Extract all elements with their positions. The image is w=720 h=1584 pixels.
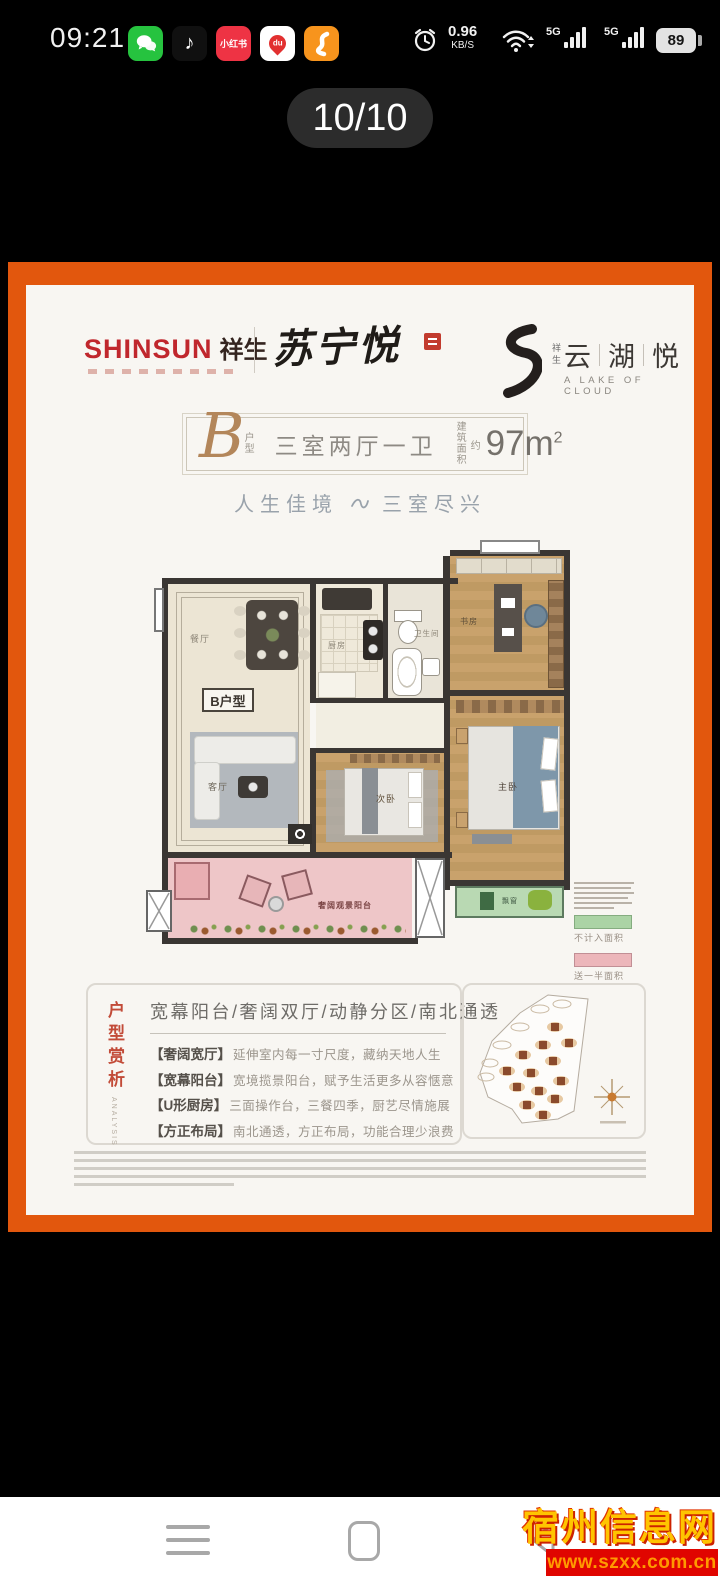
brand-shinsun-cn: 祥生 [220, 330, 268, 365]
chat-bubbles-glyph [135, 33, 157, 55]
squiggle-icon [350, 496, 370, 510]
brand-right-name: 云 湖 悦 [564, 335, 679, 374]
wall [383, 578, 388, 703]
unit-layout: 三室两厅一卫 [275, 427, 437, 461]
balcony-plants [186, 922, 406, 936]
bath-sink [422, 658, 440, 676]
bay-window-left [154, 588, 164, 632]
brand-shinsun-en: SHINSUN [84, 334, 213, 365]
label-dining: 餐厅 [190, 632, 210, 645]
bedroom2-wardrobe [350, 754, 440, 763]
label-bedroom2: 次卧 [376, 792, 396, 805]
floor-plan: 餐厅 B户型 客厅 厨房 [150, 540, 570, 964]
area-label: 建筑面积 [457, 422, 467, 466]
balcony-planter-box [174, 862, 210, 900]
dining-chair [234, 650, 246, 660]
unit-label-box: B户型 [202, 688, 254, 712]
alarm-icon [412, 27, 438, 58]
calligraphy-logo: 苏宁悦 [271, 313, 402, 375]
dining-table [246, 600, 298, 670]
android-nav-bar: 宿州信息网 www.szxx.com.cn [0, 1497, 720, 1584]
coffee-table [238, 776, 268, 798]
wall [310, 748, 450, 753]
legend-pink-swatch [574, 953, 632, 967]
master-wardrobe [456, 700, 564, 713]
watermark-site-name: 宿州信息网 [522, 1497, 717, 1551]
watermark-url-banner: www.szxx.com.cn [546, 1549, 718, 1576]
ac-ledge [480, 540, 540, 554]
analysis-bullet: 【宽幕阳台】宽境揽景阳台，赋予生活更多从容惬意 [150, 1069, 446, 1089]
unit-title-box: B 户型 三室两厅一卫 建筑面积 约 97m2 [186, 417, 524, 471]
s-curve-glyph [311, 31, 333, 57]
kitchen-sink [322, 588, 372, 610]
wall [443, 690, 570, 696]
sofa [194, 736, 296, 764]
flyer-image[interactable]: SHINSUN 祥生 苏宁悦 祥生 云 湖 悦 A LAKE OF CLOUD … [8, 262, 712, 1232]
signal-5g-icon-2: 5G [604, 26, 644, 48]
music-note-glyph: ♪ [185, 32, 195, 55]
label-living: 客厅 [208, 780, 228, 793]
analysis-divider [150, 1033, 446, 1034]
image-pager-indicator: 10/10 [287, 88, 433, 148]
nightstand [456, 812, 468, 828]
map-pin-glyph: du [265, 31, 289, 55]
xiaohongshu-label: 小红书 [220, 37, 247, 50]
brand-divider [254, 327, 255, 373]
network-speed: 0.96 KB/S [448, 25, 477, 53]
orange-app-icon [304, 26, 339, 61]
signal-5g-icon-1: 5G [546, 26, 586, 48]
bedroom2-pillow [408, 802, 422, 828]
legend-pink-label: 送一半面积 [574, 969, 640, 982]
brand-right-vertical: 祥生 [550, 343, 563, 367]
flyer-card: SHINSUN 祥生 苏宁悦 祥生 云 湖 悦 A LAKE OF CLOUD … [26, 285, 694, 1215]
brand-right-subtitle: A LAKE OF CLOUD [564, 375, 694, 397]
bedroom2-pillow [408, 772, 422, 798]
wall [162, 852, 452, 858]
analysis-bullets: 【奢阔宽厅】延伸室内每一寸尺度，藏纳天地人生 【宽幕阳台】宽境揽景阳台，赋予生活… [150, 1043, 446, 1140]
wall [450, 880, 570, 886]
wall [564, 550, 570, 890]
master-bench [472, 834, 512, 844]
legend-green-swatch [574, 915, 632, 929]
dining-chair [234, 606, 246, 616]
brand-tagline-dots [88, 369, 236, 374]
unit-letter: B [199, 416, 245, 456]
label-kitchen: 厨房 [328, 640, 346, 651]
site-plan-map [464, 985, 640, 1133]
kitchen-cabinet [318, 672, 356, 698]
legend-green-label: 不计入面积 [574, 931, 640, 944]
analysis-headline: 宽幕阳台/奢阔双厅/动静分区/南北通透 [150, 998, 446, 1024]
battery-nub [698, 35, 702, 46]
label-bay-window: 飘窗 [502, 896, 518, 906]
green-plant [528, 890, 552, 910]
analysis-card: 户型赏析 ANALYSIS 宽幕阳台/奢阔双厅/动静分区/南北通透 【奢阔宽厅】… [86, 983, 462, 1145]
tv-cabinet [288, 824, 312, 844]
wechat-icon [128, 26, 163, 61]
bathtub [392, 648, 422, 696]
phone-screen: 09:21 ♪ 小红书 du 0.96 KB/S [0, 0, 720, 1584]
tagline: 人生佳境 三室尽兴 [26, 488, 694, 517]
balcony-table [268, 896, 284, 912]
xiaohongshu-icon: 小红书 [216, 26, 251, 61]
wall [310, 578, 316, 703]
dining-chair [298, 606, 310, 616]
recents-button[interactable] [166, 1525, 210, 1564]
wall [310, 698, 450, 703]
entry-hall [316, 703, 444, 748]
study-closet [456, 558, 562, 574]
study-wardrobe [548, 580, 564, 688]
wall [443, 556, 450, 703]
battery-indicator: 89 [656, 28, 696, 53]
compass-icon [594, 1079, 630, 1115]
study-chair [524, 604, 548, 628]
analysis-vertical-title: 户型赏析 [102, 1001, 127, 1093]
area-approx: 约 [471, 437, 481, 452]
plan-legend: 不计入面积 送一半面积 [574, 882, 640, 982]
wifi-icon [502, 28, 536, 59]
nightstand [456, 728, 468, 744]
unit-type-label: 户型 [245, 433, 255, 455]
douyin-icon: ♪ [172, 26, 207, 61]
green-cabinet [480, 892, 494, 910]
analysis-bullet: 【U形厨房】三面操作台，三餐四季，厨艺尽情施展 [150, 1094, 446, 1114]
label-bathroom: 卫生间 [414, 628, 440, 639]
status-time: 09:21 [50, 22, 125, 54]
label-balcony: 奢阔观景阳台 [318, 900, 372, 911]
cloud-lake-logomark-icon [494, 321, 542, 408]
dining-chair [298, 650, 310, 660]
home-button[interactable] [348, 1521, 380, 1561]
dining-chair [234, 628, 246, 638]
study-desk [494, 584, 522, 652]
analysis-vertical-subtitle: ANALYSIS [110, 1097, 117, 1147]
baidu-maps-icon: du [260, 26, 295, 61]
legal-disclaimer-text [74, 1151, 646, 1191]
analysis-body: 宽幕阳台/奢阔双厅/动静分区/南北通透 【奢阔宽厅】延伸室内每一寸尺度，藏纳天地… [150, 998, 446, 1145]
area-value: 97m2 [486, 424, 563, 464]
master-pillow [541, 779, 559, 812]
site-plan-card [462, 983, 646, 1139]
red-seal-icon [424, 333, 441, 350]
planter-outside [146, 890, 172, 932]
window-box [415, 858, 445, 938]
notification-icons: ♪ 小红书 du [128, 26, 339, 61]
wall [162, 938, 418, 944]
stove [363, 620, 383, 660]
watermark-url: www.szxx.com.cn [547, 1552, 716, 1574]
brand-shinsun: SHINSUN 祥生 [84, 330, 268, 365]
label-master: 主卧 [498, 780, 518, 793]
dining-chair [298, 628, 310, 638]
analysis-bullet: 【奢阔宽厅】延伸室内每一寸尺度，藏纳天地人生 [150, 1043, 446, 1063]
analysis-bullet: 【方正布局】南北通透，方正布局，功能合理少浪费 [150, 1120, 446, 1140]
label-study: 书房 [460, 616, 478, 627]
